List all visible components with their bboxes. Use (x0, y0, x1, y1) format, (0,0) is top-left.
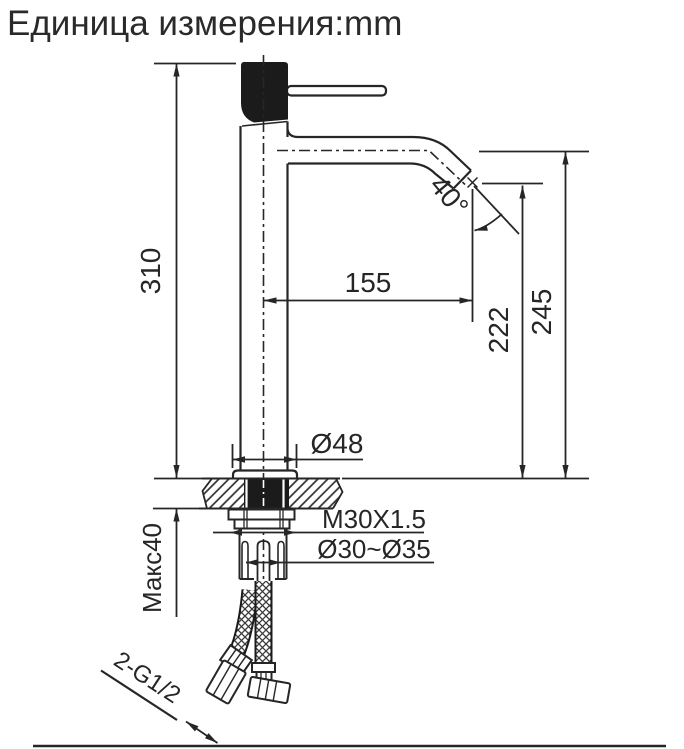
hose-right-crimp (252, 663, 275, 672)
spout-tip-mark (468, 178, 478, 188)
faucet-technical-drawing: 310 155 222 245 40° Ø48 M30X1.5 Ø30~Ø35 … (0, 0, 684, 749)
dim-thread-label: M30X1.5 (322, 504, 426, 534)
horseshoe-washer (229, 510, 295, 520)
handle-head (241, 62, 288, 123)
mounting-nut (235, 520, 290, 529)
hose-label-arrow (186, 722, 218, 744)
dim-hole-diameter-label: Ø30~Ø35 (317, 534, 430, 564)
hose-right-nut (248, 677, 291, 704)
dim-base-diameter-label: Ø48 (311, 428, 364, 459)
head-body-seam (242, 122, 288, 127)
dim-max-thickness-label: Макс40 (137, 523, 167, 613)
base-flange (233, 471, 297, 479)
dim-outlet-height-label: 222 (483, 307, 514, 354)
angle-leader (474, 186, 519, 234)
hoses-group (206, 581, 291, 704)
dim-spout-reach-label: 155 (345, 267, 392, 298)
dim-spout-angle-label: 40° (424, 170, 475, 222)
faucet-spec-sheet: Единица измерения:mm (0, 0, 684, 749)
lever-handle (287, 86, 386, 96)
mounting-stud-right (278, 542, 284, 580)
dimension-lines (101, 64, 589, 744)
dim-total-height-label: 310 (135, 248, 166, 295)
dim-spout-height-label: 245 (526, 289, 557, 336)
angle-arc (475, 214, 503, 231)
mounting-stud-left (242, 542, 248, 580)
gasket (244, 480, 289, 508)
